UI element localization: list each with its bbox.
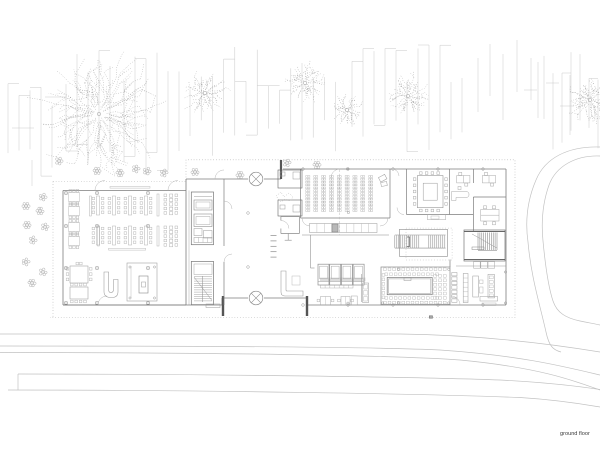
svg-text:ground floor: ground floor xyxy=(560,431,590,437)
